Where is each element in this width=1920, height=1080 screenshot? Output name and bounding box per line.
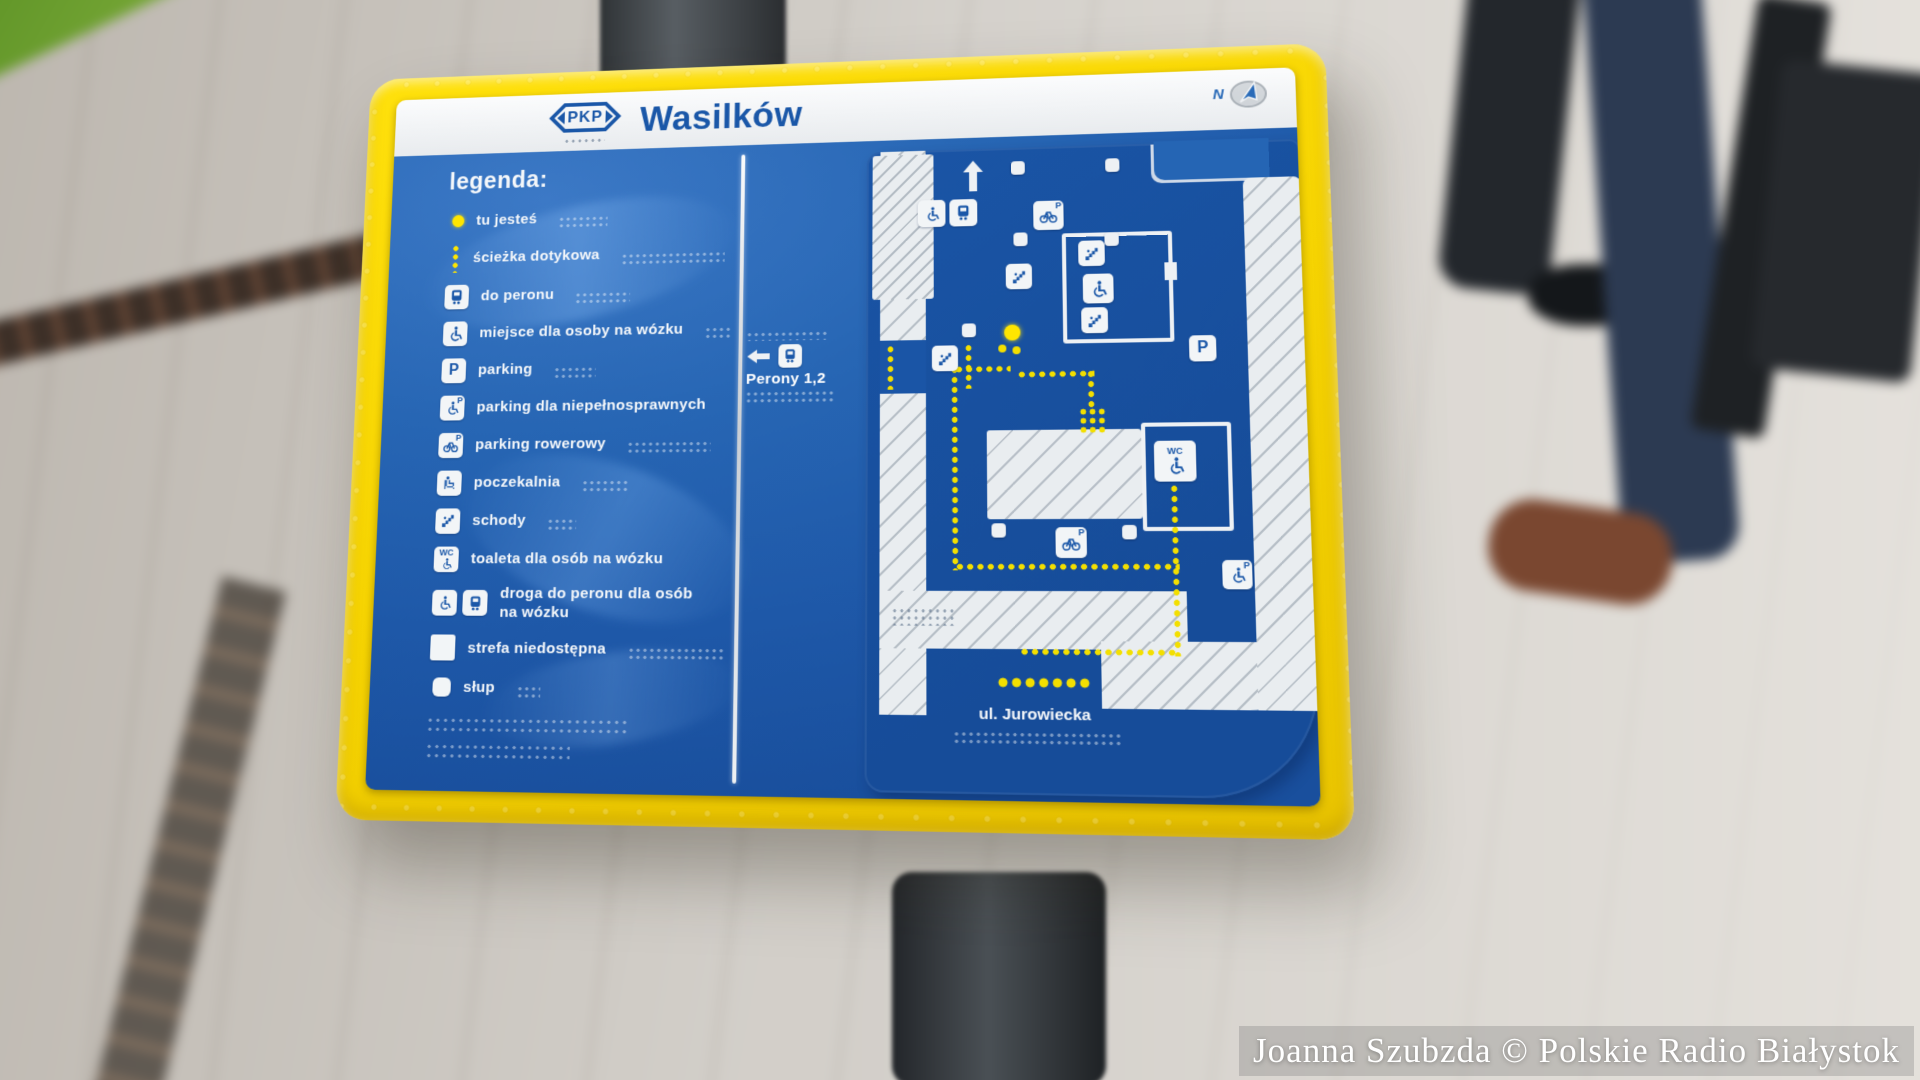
sign-body: legenda: tu jesteś ścieżka dotykowa <box>365 127 1321 806</box>
map-area: Perony 1,2 <box>746 133 1311 797</box>
station-tactile-sign: PKP Wasilków N <box>335 43 1355 840</box>
photo-credit-watermark: Joanna Szubzda © Polskie Radio Białystok <box>1239 1026 1914 1076</box>
braille-dots <box>582 479 629 492</box>
braille-dots <box>892 607 958 626</box>
braille-dots <box>575 291 630 304</box>
waiting-room-icon <box>437 470 462 495</box>
braille-dots <box>621 250 724 265</box>
braille-dots <box>554 366 596 379</box>
street-label: ul. Jurowiecka <box>943 705 1128 726</box>
braille-dots <box>953 730 1122 749</box>
post-marker <box>1011 161 1025 175</box>
stairs-icon <box>435 508 461 533</box>
braille-dots <box>628 646 723 660</box>
tactile-path <box>1019 647 1179 657</box>
tactile-dot <box>998 345 1006 353</box>
wheelchair-icon <box>443 321 468 346</box>
post-icon <box>432 677 451 696</box>
train-icon <box>778 344 802 368</box>
wheelchair-icon <box>1083 273 1114 303</box>
you-are-here-dot-icon <box>452 215 464 227</box>
stairs-icon <box>1078 240 1105 266</box>
photo-canvas: PKP Wasilków N <box>0 0 1920 1080</box>
post-marker <box>1104 232 1119 246</box>
pkp-logo-text: PKP <box>567 107 603 127</box>
map-plate: P <box>864 139 1320 800</box>
accessible-toilet-icon: WC <box>1154 440 1197 481</box>
tactile-path <box>954 364 1011 374</box>
station-name: Wasilków <box>640 95 803 140</box>
braille-dots <box>564 137 605 146</box>
bike-parking-icon: P <box>1033 200 1064 230</box>
tactile-path <box>997 676 1094 689</box>
disabled-parking-icon: P <box>1222 560 1253 589</box>
legend-panel: legenda: tu jesteś ścieżka dotykowa <box>365 144 795 798</box>
north-compass: N <box>1212 76 1269 111</box>
sign-panel: PKP Wasilków N <box>365 67 1321 806</box>
braille-dots <box>628 440 712 454</box>
plate-notch <box>1153 138 1269 180</box>
post-marker <box>1105 158 1119 172</box>
train-icon <box>462 590 488 616</box>
station-building <box>987 429 1143 519</box>
north-direction-arrow-icon <box>961 160 985 191</box>
braille-dots <box>426 743 570 761</box>
tactile-path-icon <box>451 245 461 273</box>
compass-arrow-icon <box>1227 76 1269 110</box>
train-icon <box>444 284 469 309</box>
tactile-dot <box>1012 346 1020 354</box>
bike-parking-icon: P <box>1055 527 1087 558</box>
platforms-pointer: Perony 1,2 <box>746 325 863 406</box>
stairs-icon <box>1081 307 1108 333</box>
stairs-icon <box>932 345 958 371</box>
pkp-logo: PKP <box>548 98 622 146</box>
you-are-here-dot <box>1004 325 1020 341</box>
braille-dots <box>705 326 730 339</box>
tactile-path <box>886 344 895 389</box>
post-marker <box>991 523 1005 537</box>
wheelchair-icon <box>918 200 946 228</box>
post-marker <box>1013 232 1027 246</box>
braille-dots <box>746 330 826 341</box>
accessible-toilet-icon: WC <box>433 546 459 572</box>
tactile-path <box>955 562 1180 571</box>
inaccessible-area-icon <box>430 635 456 661</box>
bike-parking-icon: P <box>438 432 463 457</box>
braille-dots <box>558 215 607 228</box>
braille-dots <box>427 716 630 739</box>
train-icon <box>949 199 977 227</box>
stairs-icon <box>1006 263 1032 289</box>
arrow-left-icon <box>746 347 772 365</box>
braille-dots <box>746 389 837 404</box>
parking-icon: P <box>441 358 466 383</box>
tactile-path <box>1017 369 1095 379</box>
parking-icon: P <box>1189 335 1217 362</box>
braille-dots <box>517 685 541 698</box>
tactile-path <box>1086 369 1096 409</box>
disabled-parking-icon: P <box>440 395 465 420</box>
tactile-path <box>950 365 960 570</box>
post-marker <box>962 323 976 337</box>
sign-mounting-post <box>892 872 1106 1080</box>
tactile-attention-field <box>1079 407 1107 435</box>
door-tab <box>1164 262 1177 280</box>
braille-dots <box>547 518 576 531</box>
post-marker <box>1122 525 1137 539</box>
platforms-label: Perony 1,2 <box>746 369 862 388</box>
north-letter: N <box>1212 86 1224 103</box>
wheelchair-icon <box>432 590 458 616</box>
